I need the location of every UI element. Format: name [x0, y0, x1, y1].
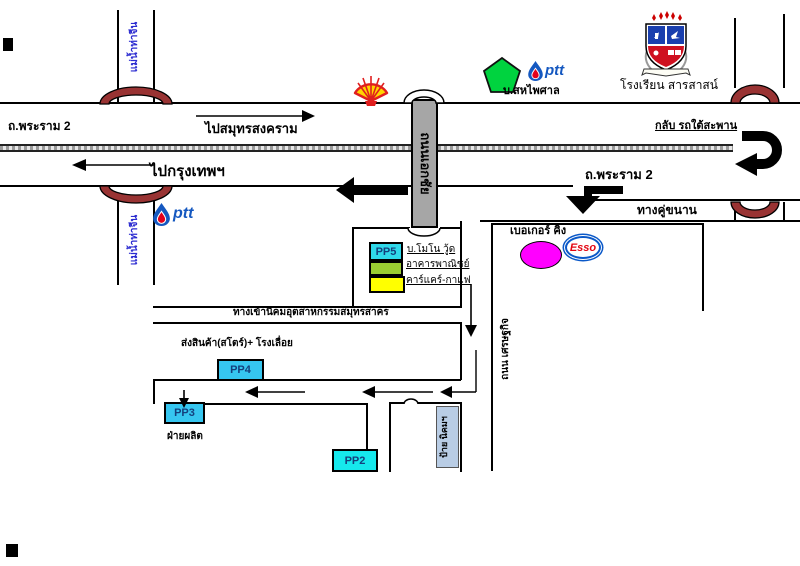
- shell-logo-icon: [350, 70, 392, 108]
- page-anchor-top-left: [3, 38, 13, 51]
- thick-left-arrow: [336, 177, 408, 203]
- pp5-block-left: [352, 227, 354, 308]
- ekachai-road-label: ถนนเอกชัย: [417, 104, 432, 223]
- to-bangkok-arrowhead: [72, 159, 86, 171]
- ptt-wordmark-left: ptt: [173, 205, 193, 223]
- estate-soi-bottom: [153, 322, 461, 324]
- burger-king-ellipse: [520, 241, 562, 269]
- setthakit-road-label: ถนน เศรษฐกิจ: [500, 294, 514, 404]
- rama2-label-left: ถ.พระราม 2: [8, 120, 71, 134]
- esso-wordmark: Esso: [570, 242, 596, 254]
- ptt-flame-icon-top: [528, 61, 543, 81]
- uturn-under-bridge-label: กลับ รถใต้สะพาน: [655, 120, 737, 133]
- sign-block-top-b: [417, 402, 462, 404]
- pp2-label: PP2: [345, 455, 366, 467]
- commercial-building-box: [369, 261, 403, 276]
- to-samut-songkhram-label: ไปสมุทรสงคราม: [205, 122, 298, 137]
- building-pp3: PP3: [164, 402, 205, 424]
- rama2-lower-edge-right: [590, 199, 800, 201]
- pp4-label: PP4: [230, 364, 251, 376]
- uturn-bridge-arch-upper: [731, 85, 779, 103]
- pp5-block-top-b: [440, 227, 461, 229]
- corridor-left-lower: [460, 322, 462, 380]
- soi-left-arrowhead-2: [362, 386, 375, 398]
- right-cross-road-upper-left: [734, 18, 736, 88]
- car-care-coffee-label: คาร์แคร์-กาแฟ: [406, 275, 471, 287]
- rama2-label-right: ถ.พระราม 2: [585, 168, 653, 183]
- left-jog-vertical: [153, 379, 155, 404]
- page-anchor-bottom-left: [6, 544, 18, 557]
- river-label-upper: แม่น้ำท่าจีน: [129, 7, 143, 87]
- uturn-bridge-arch-lower: [731, 202, 779, 218]
- esso-block-right: [702, 223, 704, 311]
- pp3-label: PP3: [174, 407, 195, 419]
- lower-soi-bottom: [205, 403, 368, 405]
- ptt-flame-icon-left: [153, 203, 170, 226]
- route-map-canvas: ถนนเอกชัย PP5 PP4 PP3 PP2 ป้าย นิคมฯ ptt…: [0, 0, 800, 566]
- access-road-right-line: [491, 223, 493, 471]
- pp5-label: PP5: [376, 246, 397, 258]
- frontage-road-label: ทางคู่ขนาน: [637, 204, 697, 218]
- commercial-building-label: อาคารพาณิชย์: [406, 259, 469, 271]
- right-cross-road-lower-left: [734, 202, 736, 221]
- right-cross-road-lower-right: [783, 202, 785, 221]
- sign-block-top-a: [389, 402, 404, 404]
- rama2-upper-edge: [0, 102, 800, 104]
- to-samut-songkhram-arrowhead: [302, 110, 315, 122]
- frontage-road-line: [480, 220, 800, 222]
- industrial-estate-entrance-label: ทางเข้านิคมอุตสาหกรรมสมุทรสาคร: [233, 307, 389, 319]
- burger-king-label: เบอเกอร์ คิง: [510, 225, 566, 238]
- production-dept-label: ฝ่ายผลิต: [167, 431, 203, 443]
- river-bank-lower-left: [117, 200, 119, 285]
- delivery-store-sawmill-label: ส่งสินค้า(สโตร์)+ โรงเลื่อย: [181, 338, 293, 350]
- river-label-lower: แม่น้ำท่าจีน: [129, 200, 143, 280]
- building-pp2: PP2: [332, 449, 378, 472]
- building-pp5: PP5: [369, 242, 403, 261]
- right-cross-road-upper-right: [783, 14, 785, 88]
- rama2-lower-edge-left: [0, 185, 573, 187]
- to-bangkok-label: ไปกรุงเทพฯ: [150, 163, 225, 180]
- pp5-block-top-a: [352, 227, 410, 229]
- corridor-down-arrowhead: [465, 325, 477, 337]
- estate-sign-label: ป้าย นิคมฯ: [439, 405, 455, 469]
- mono-wood-label: บ.โมโน วู้ด: [407, 244, 455, 256]
- esso-logo: Esso: [565, 236, 601, 259]
- pp5-block-arc: [408, 228, 440, 236]
- rama2-median: [0, 144, 733, 152]
- uturn-arrow: [742, 136, 777, 164]
- sign-block-right: [460, 402, 462, 472]
- building-pp4: PP4: [217, 359, 264, 381]
- soi-left-arrowhead-1: [245, 386, 258, 398]
- lower-soi-top: [153, 379, 461, 381]
- sign-block-left: [389, 402, 391, 472]
- river-bank-upper-right: [153, 10, 155, 103]
- river-bank-upper-left: [117, 10, 119, 103]
- sign-block-bump: [404, 399, 418, 404]
- ptt-wordmark-top: ptt: [545, 62, 564, 79]
- soi-left-arrowhead-3: [440, 386, 452, 398]
- uturn-arrowhead: [735, 153, 757, 176]
- car-care-box: [369, 276, 405, 293]
- school-crest-icon: [642, 12, 690, 78]
- saha-phaisan-label: บ.สหไพศาล: [503, 85, 560, 98]
- school-label: โรงเรียน สารสาสน์: [620, 79, 718, 93]
